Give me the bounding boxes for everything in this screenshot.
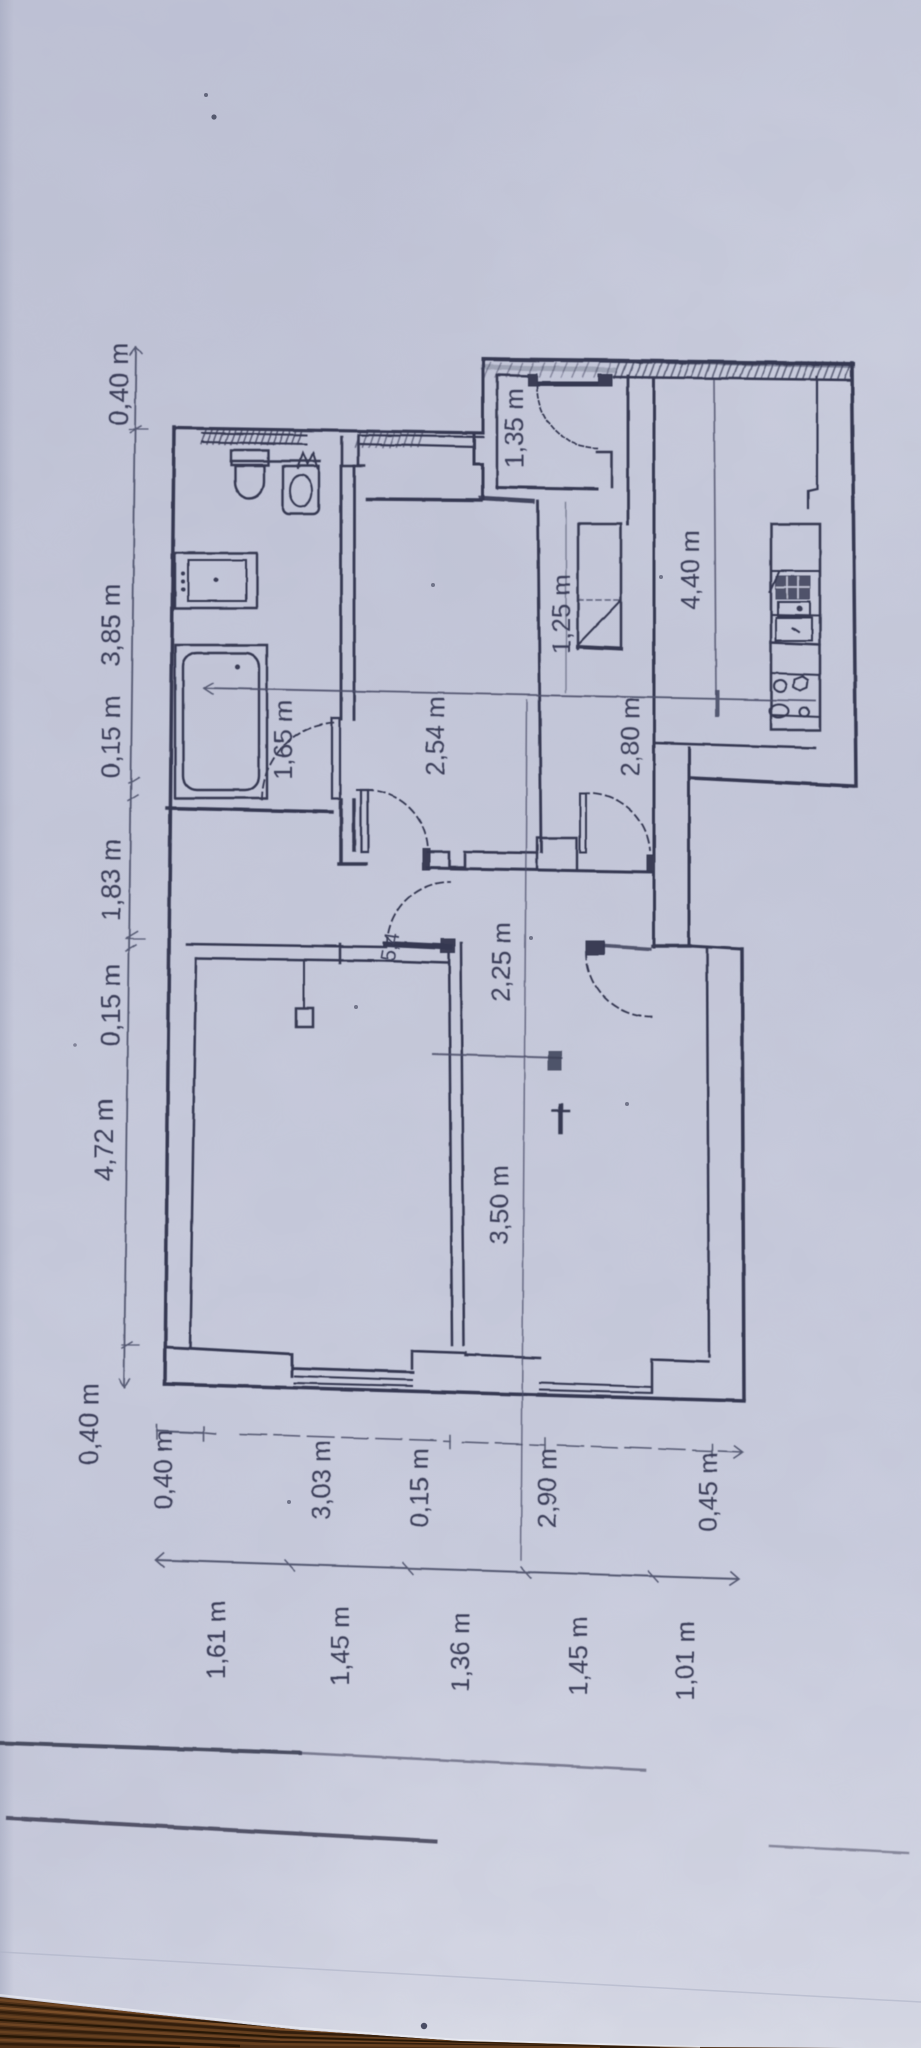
svg-text:0,15 m: 0,15 m [404, 1448, 434, 1528]
svg-text:3,85 m: 3,85 m [96, 584, 126, 667]
svg-text:0,40 m: 0,40 m [104, 343, 134, 426]
svg-text:3,03 m: 3,03 m [306, 1440, 336, 1520]
svg-text:1,36 m: 1,36 m [445, 1612, 475, 1692]
svg-text:1,65 m: 1,65 m [268, 700, 298, 780]
svg-text:0,15 m: 0,15 m [96, 964, 126, 1047]
svg-text:1,25 m: 1,25 m [546, 574, 576, 654]
svg-text:2,80 m: 2,80 m [615, 697, 645, 777]
svg-text:4,72 m: 4,72 m [89, 1099, 119, 1182]
svg-text:1,35 m: 1,35 m [499, 388, 529, 468]
svg-text:2,54 m: 2,54 m [420, 696, 450, 776]
svg-text:3,50 m: 3,50 m [484, 1165, 514, 1245]
svg-text:2,90 m: 2,90 m [532, 1448, 562, 1528]
svg-text:0,40 m: 0,40 m [148, 1430, 178, 1510]
svg-text:0,15 m: 0,15 m [96, 696, 126, 779]
svg-text:1,45 m: 1,45 m [563, 1616, 593, 1696]
svg-text:4,40 m: 4,40 m [675, 530, 705, 610]
svg-text:0,40 m: 0,40 m [74, 1383, 104, 1466]
svg-text:1,83 m: 1,83 m [96, 839, 126, 922]
svg-text:1,01 m: 1,01 m [670, 1621, 700, 1701]
svg-text:1,45 m: 1,45 m [325, 1606, 355, 1686]
svg-text:0,45 m: 0,45 m [693, 1452, 723, 1532]
svg-text:2,25 m: 2,25 m [486, 922, 516, 1002]
svg-text:1,61 m: 1,61 m [201, 1600, 231, 1680]
